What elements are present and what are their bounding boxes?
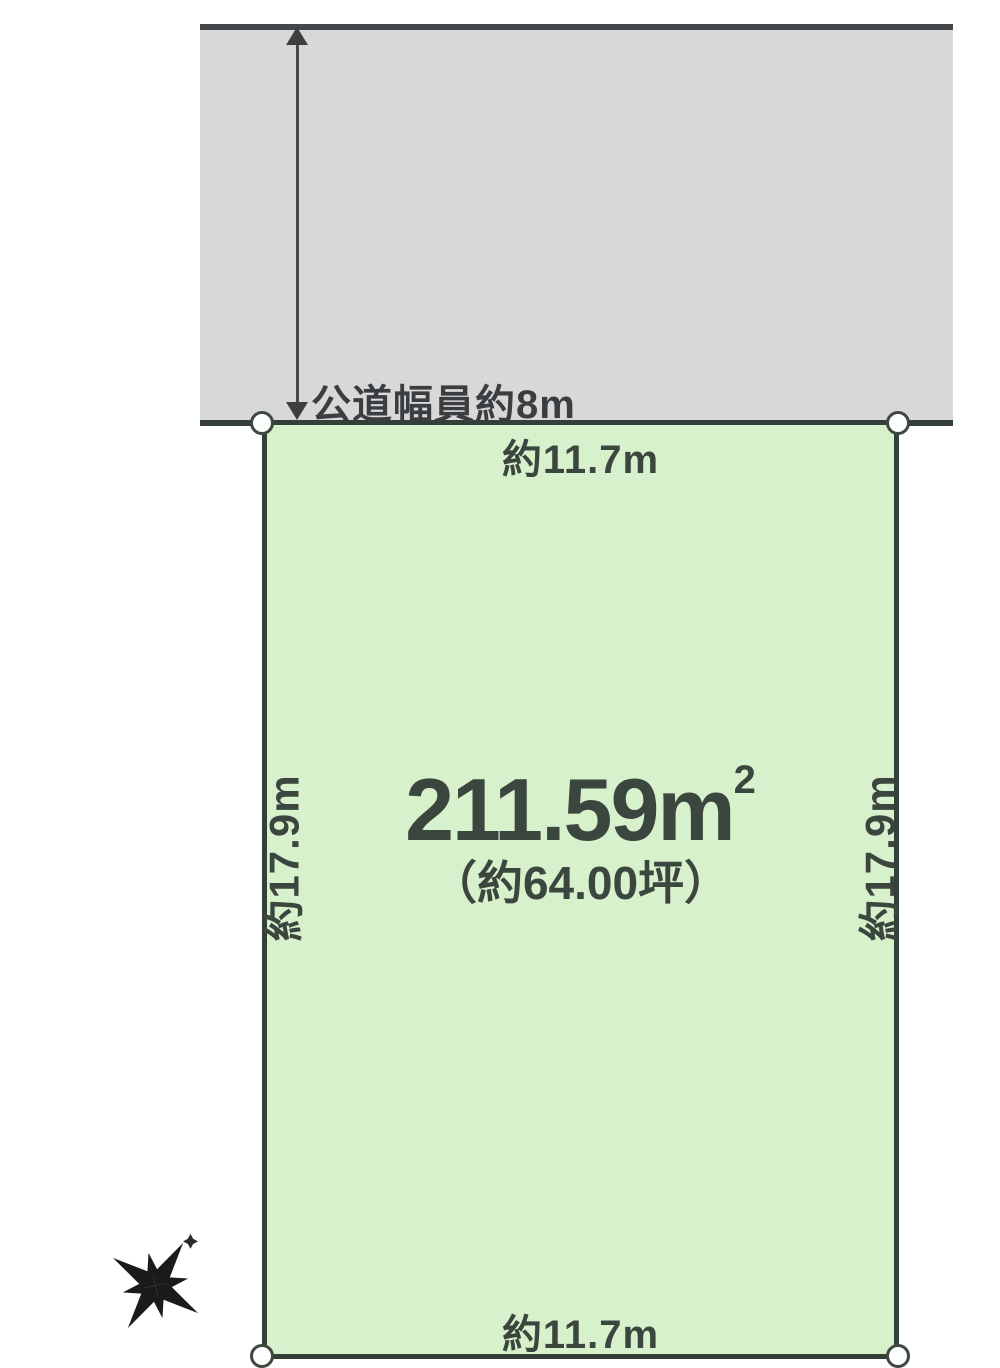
corner-marker-bottom-left: [250, 1344, 274, 1368]
north-marker-icon: [183, 1234, 198, 1249]
area-tsubo-label: （約64.00坪）: [262, 856, 899, 911]
road-area: [200, 24, 953, 426]
corner-marker-top-right: [886, 411, 910, 435]
area-sqm-label: 211.59m2: [262, 766, 899, 854]
compass-rose-icon: [103, 1233, 208, 1338]
area-superscript: 2: [734, 758, 756, 802]
arrow-down-icon: [286, 402, 308, 420]
corner-marker-top-left: [250, 411, 274, 435]
arrow-up-icon: [286, 27, 308, 45]
dimension-top: 約11.7m: [262, 427, 899, 485]
area-value: 211.59: [405, 760, 657, 859]
road-width-label: 公道幅員約8m: [311, 372, 576, 430]
land-plot-diagram: 公道幅員約8m 約11.7m 約17.9m 約17.9m 約11.7m 211.…: [0, 0, 1000, 1368]
corner-marker-bottom-right: [886, 1344, 910, 1368]
area-label-block: 211.59m2 （約64.00坪）: [262, 766, 899, 911]
area-unit: m: [657, 760, 733, 859]
road-width-arrow: [296, 38, 299, 410]
dimension-bottom: 約11.7m: [262, 1302, 899, 1360]
